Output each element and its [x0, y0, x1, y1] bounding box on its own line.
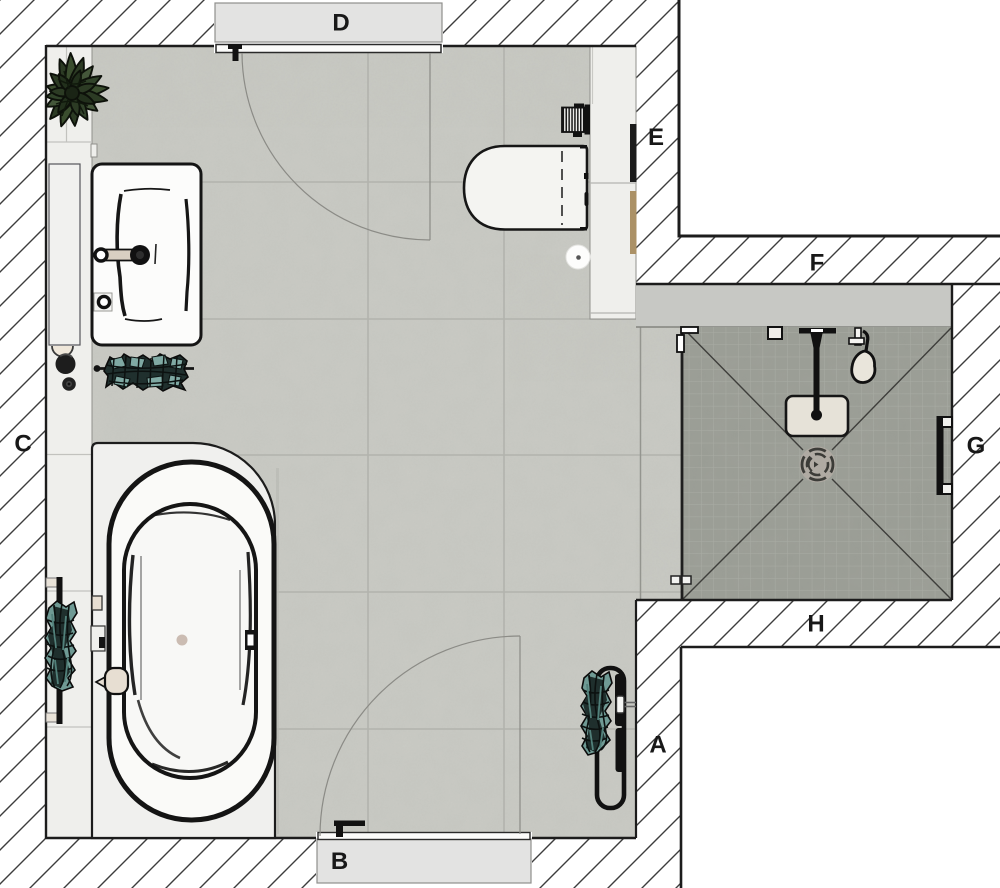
svg-text:E: E — [648, 124, 664, 151]
svg-text:G: G — [967, 433, 986, 460]
svg-text:B: B — [331, 848, 348, 875]
svg-text:F: F — [810, 250, 825, 277]
svg-text:C: C — [14, 431, 31, 458]
svg-text:H: H — [807, 611, 824, 638]
svg-text:A: A — [649, 732, 666, 759]
svg-text:D: D — [332, 10, 349, 37]
